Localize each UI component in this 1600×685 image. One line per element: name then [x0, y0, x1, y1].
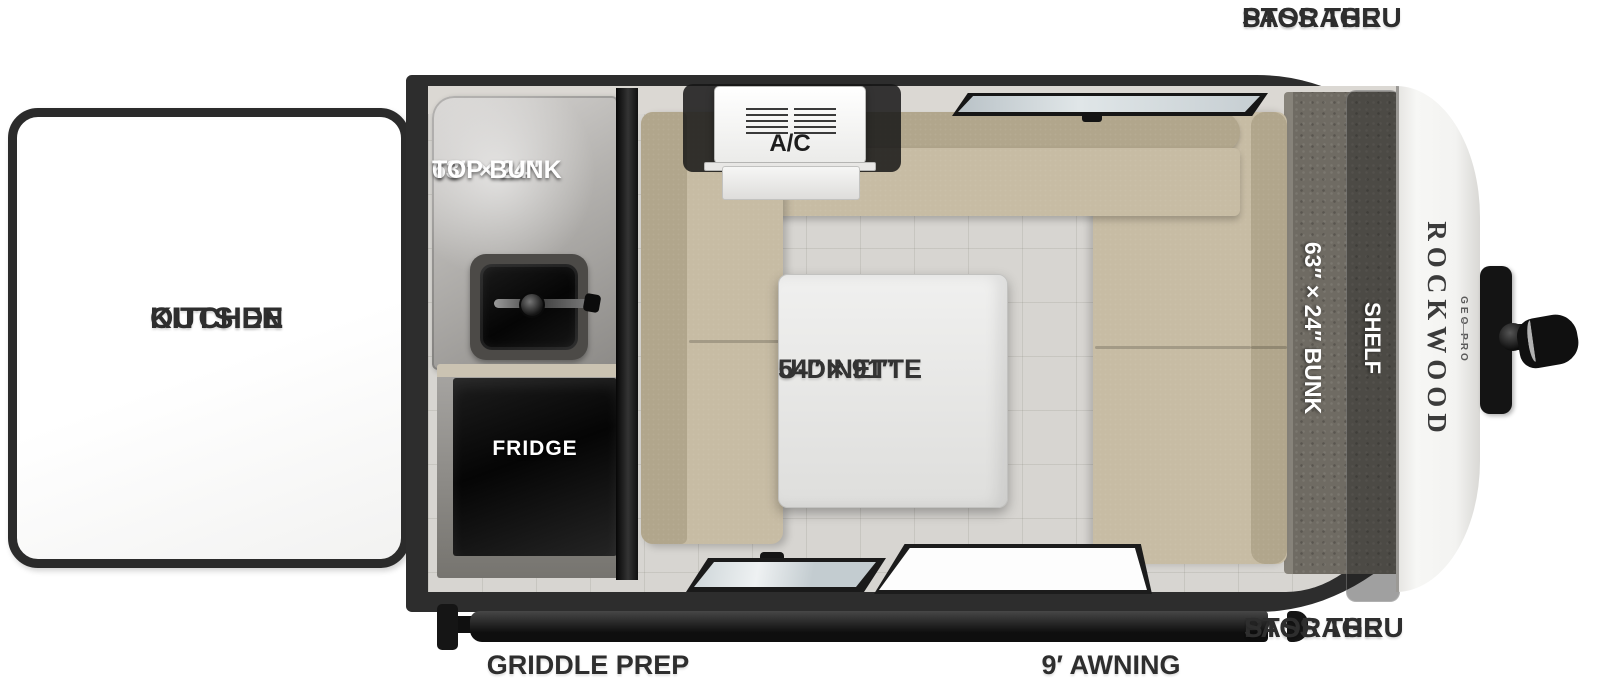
front-bunk-label: 63″ × 24″ BUNK: [1299, 203, 1327, 453]
partition-wall: [616, 88, 638, 580]
top-window-latch: [1082, 112, 1102, 122]
outside-kitchen-door: [8, 108, 410, 568]
awning-bracket: [437, 604, 458, 650]
faucet-spout: [583, 293, 602, 314]
brand-submark: GEO PRO: [1456, 255, 1472, 405]
faucet-base: [519, 292, 545, 318]
floorplan-canvas: OUTSIDE KITCHEN 63″ × 24″ TOP BUNK FRIDG…: [0, 0, 1600, 685]
bottom-window-glass: [694, 562, 876, 587]
ac-label: A/C: [714, 130, 866, 158]
cushion-seam: [689, 340, 783, 343]
pass-thru-top-line2: STORAGE: [1242, 2, 1380, 34]
cushion-seam: [1251, 346, 1287, 349]
fridge-label: FRIDGE: [453, 437, 617, 461]
outside-kitchen-line2: KITCHEN: [150, 302, 283, 337]
pass-thru-bottom-line2: STORAGE: [1244, 612, 1382, 644]
brand-wordmark: ROCKWOOD: [1419, 180, 1455, 480]
brand-rule: [1464, 317, 1465, 343]
fridge: [453, 378, 617, 556]
u-dinette-text: U-DINETTE: [778, 352, 922, 387]
entry-door-panel: [879, 548, 1147, 590]
top-bunk-text: TOP BUNK: [432, 155, 562, 186]
top-window-glass: [958, 96, 1260, 112]
shelf-label: SHELF: [1360, 263, 1384, 413]
ac-tray: [722, 166, 860, 200]
awning-roller: [470, 611, 1268, 642]
cushion-seam: [1095, 346, 1251, 349]
dinette-bench-right-backrest: [1251, 112, 1287, 564]
dinette-bench-left-backrest: [641, 112, 687, 544]
awning-label: 9′ AWNING: [961, 650, 1261, 681]
griddle-prep-label: GRIDDLE PREP: [438, 650, 738, 681]
dinette-table: [778, 274, 1008, 508]
tongue-jack-handle: [1514, 311, 1582, 371]
